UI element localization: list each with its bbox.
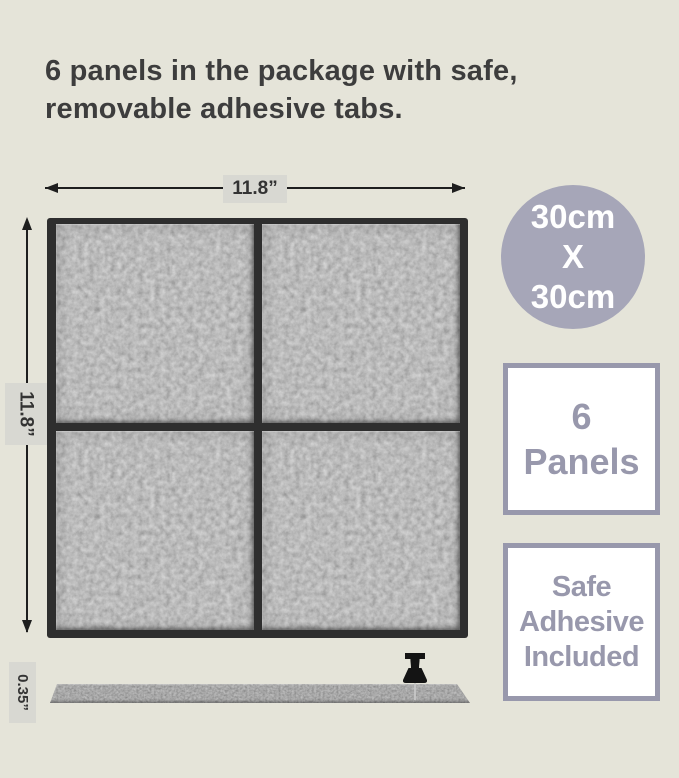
felt-tile xyxy=(56,224,254,423)
felt-tile xyxy=(56,431,254,630)
adhesive-line3: Included xyxy=(524,640,639,675)
headline: 6 panels in the package with safe, remov… xyxy=(45,52,645,128)
headline-line2: removable adhesive tabs. xyxy=(45,90,645,128)
size-line1: 30cm xyxy=(531,197,615,237)
count-line2: Panels xyxy=(523,439,639,484)
adhesive-badge: Safe Adhesive Included xyxy=(503,543,660,701)
count-line1: 6 xyxy=(571,394,591,439)
felt-tile xyxy=(262,431,460,630)
thickness-dimension-label: 0.35” xyxy=(9,662,36,723)
headline-line1: 6 panels in the package with safe, xyxy=(45,52,645,90)
felt-tile xyxy=(262,224,460,423)
height-dimension-label: 11.8” xyxy=(5,383,47,445)
arrowhead-left-icon xyxy=(45,183,58,193)
height-value: 11.8” xyxy=(15,391,37,436)
size-line3: 30cm xyxy=(531,277,615,317)
pushpin-icon xyxy=(400,653,430,701)
size-line2: X xyxy=(562,237,584,277)
arrowhead-up-icon xyxy=(22,217,32,230)
acoustic-panel-image xyxy=(47,218,468,638)
adhesive-line1: Safe xyxy=(552,570,611,605)
panel-count-badge: 6 Panels xyxy=(503,363,660,515)
width-value: 11.8” xyxy=(232,178,277,200)
arrowhead-right-icon xyxy=(452,183,465,193)
size-circle-badge: 30cm X 30cm xyxy=(501,185,645,329)
thickness-value: 0.35” xyxy=(14,674,31,711)
arrowhead-down-icon xyxy=(22,620,32,633)
product-infographic: 6 panels in the package with safe, remov… xyxy=(0,0,679,778)
width-dimension-label: 11.8” xyxy=(223,175,287,203)
adhesive-line2: Adhesive xyxy=(519,605,644,640)
